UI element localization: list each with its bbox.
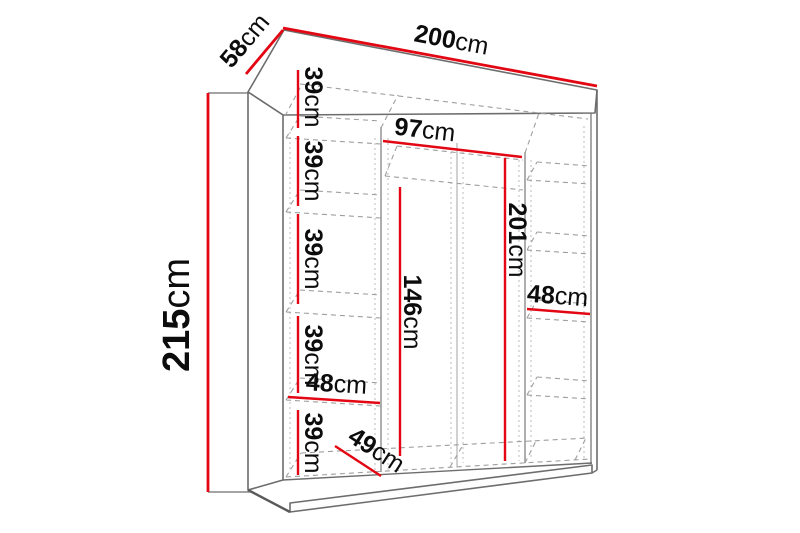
left-side-panel: [248, 92, 283, 490]
shelf-edge: [537, 377, 590, 381]
shelf-edge: [286, 212, 381, 218]
label-left-width-48: 48cm: [305, 368, 368, 400]
label-gap39-1: 39cm: [299, 66, 327, 127]
shelf-edge: [537, 232, 590, 236]
shelf-edge: [397, 146, 523, 160]
shelf-edge: [537, 162, 590, 166]
diagram-canvas: 200cm 58cm 215cm 39cm 39cm 39cm 39cm 39c…: [0, 0, 800, 533]
shelf-edge: [527, 250, 590, 254]
label-right-width-48: 48cm: [526, 280, 589, 313]
depth-diagonal: [525, 113, 539, 153]
shelf-edge: [527, 395, 590, 399]
shelf-edge: [286, 312, 381, 318]
label-interior-height-201: 201cm: [503, 202, 531, 277]
plinth-left-slant: [248, 490, 290, 512]
label-hanging-146: 146cm: [398, 274, 426, 349]
shelf-edge: [527, 318, 590, 322]
wardrobe-dimension-diagram: 200cm 58cm 215cm 39cm 39cm 39cm 39cm 39c…: [0, 0, 800, 533]
label-gap39-3: 39cm: [299, 228, 327, 289]
middle-top-shelf: [385, 146, 523, 190]
label-gap39-2: 39cm: [299, 140, 327, 201]
plinth-front: [290, 465, 592, 512]
shelf-edge: [385, 176, 523, 190]
shelf-edge: [385, 146, 397, 176]
floor-diagonal: [525, 441, 536, 463]
shelf-edge: [527, 180, 590, 184]
label-gap39-5: 39cm: [299, 412, 327, 473]
shelf-edge: [300, 290, 381, 295]
shelf-edge: [527, 162, 537, 180]
shelf-edge: [527, 377, 537, 395]
label-height-215: 215cm: [156, 258, 198, 372]
